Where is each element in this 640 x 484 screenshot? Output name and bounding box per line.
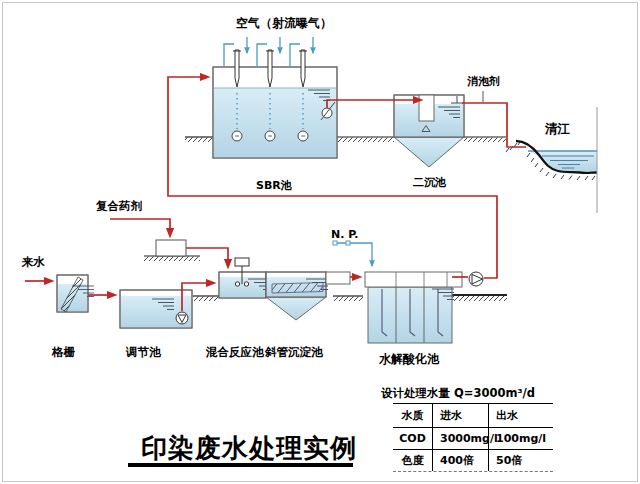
screen-label: 格栅 <box>52 347 75 359</box>
table-header: 出水 <box>488 404 553 427</box>
settler-outlet-box <box>326 272 350 284</box>
inclined-label: 斜管沉淀池 <box>265 347 323 359</box>
table-cell: 色度 <box>393 450 432 471</box>
table-cell: 400倍 <box>432 450 488 471</box>
design-table-title: 设计处理水量 Q=3000m³/d <box>381 386 535 401</box>
inclined-tubes-icon <box>272 283 323 294</box>
mixing-label: 混合反应池 <box>206 347 264 359</box>
river-label: 清江 <box>545 123 570 136</box>
process-diagram: 空气（射流曝气） 消泡剂 清江 SBR池 二沉池 复合药剂 来水 N. P. 格… <box>0 0 640 484</box>
chemical-line <box>110 219 170 236</box>
design-table: 水质 进水 出水 COD 3000mg/l 100mg/l 色度 400倍 50… <box>393 403 553 472</box>
table-header: 进水 <box>432 404 488 427</box>
pump-icon <box>469 272 483 286</box>
page-title: 印染废水处理实例 <box>141 431 357 466</box>
table-cell: 50倍 <box>488 450 553 471</box>
np-line <box>333 241 372 266</box>
table-header-row: 水质 进水 出水 <box>393 403 553 427</box>
regulating-label: 调节池 <box>126 347 161 359</box>
sbr-label: SBR池 <box>256 180 292 191</box>
air-label: 空气（射流曝气） <box>236 17 332 29</box>
hydrolysis-tank <box>365 272 483 343</box>
table-cell: 100mg/l <box>488 428 553 449</box>
mixing-tank <box>219 258 270 298</box>
hydrolysis-label: 水解酸化池 <box>379 353 439 365</box>
pump-icon <box>176 312 188 324</box>
sbr-tank <box>213 67 337 158</box>
table-row: 色度 400倍 50倍 <box>393 449 553 471</box>
table-header: 水质 <box>393 404 432 427</box>
screen-tank <box>57 275 94 312</box>
defoamer-label: 消泡剂 <box>467 76 500 87</box>
np-label: N. P. <box>331 229 358 240</box>
chemical-label: 复合药剂 <box>96 201 142 213</box>
clarifier-label: 二沉池 <box>413 177 446 188</box>
influent-label: 来水 <box>22 257 45 269</box>
feed-well <box>419 95 434 121</box>
table-cell: 3000mg/l <box>432 428 488 449</box>
title-underline <box>128 463 353 467</box>
chemical-dosing-box <box>156 240 186 256</box>
table-row: COD 3000mg/l 100mg/l <box>393 427 553 449</box>
table-cell: COD <box>393 428 432 449</box>
